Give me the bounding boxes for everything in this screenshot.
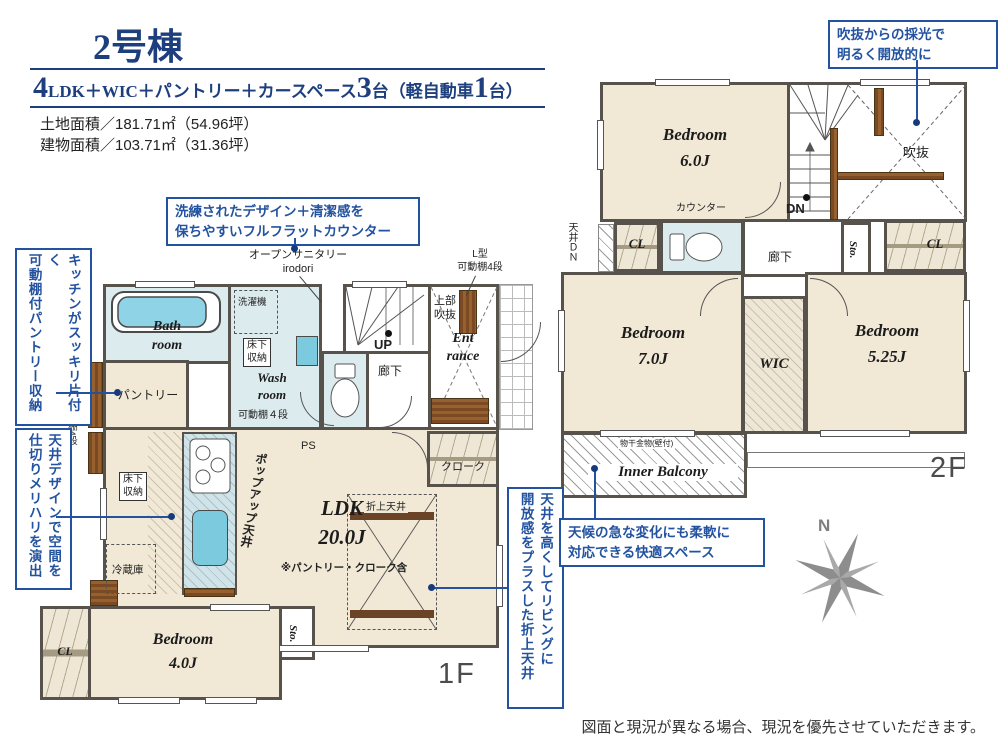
oriage-label: 折上天井: [364, 498, 408, 513]
underfloor-storage-label-1: 床下 収納: [243, 338, 271, 367]
callout-weather-dot: [591, 465, 598, 472]
counter-2f-label: カウンター: [676, 199, 726, 214]
window-2f-3: [597, 120, 604, 170]
divider-top: [30, 68, 545, 70]
window-1f-5: [496, 545, 503, 607]
stair-rail-wood-1: [874, 88, 884, 136]
toilet-icon-2f: [668, 228, 730, 266]
callout-void-light-line: [916, 60, 918, 122]
window-2f-6: [600, 430, 695, 437]
window-1f-1: [135, 281, 195, 288]
spec-num-3: 3: [357, 71, 372, 104]
window-2f-7: [820, 430, 910, 437]
callout-void-light-dot: [913, 119, 920, 126]
window-1f-7: [205, 697, 257, 704]
bath-label: Bath room: [122, 318, 212, 356]
callout-ceiling-design-line: [56, 516, 172, 518]
room-hall-2f: [742, 219, 846, 277]
kitchen-counter-wood-edge: [184, 588, 235, 597]
callout-pantry-dot: [114, 389, 121, 396]
bedroom525-label: Bedroom 5.25J: [822, 318, 952, 369]
hanger-label: 物干金物(壁付): [618, 438, 675, 449]
window-1f-6: [118, 697, 180, 704]
pantry-label: パントリー: [110, 386, 186, 403]
dn-dot: [803, 194, 810, 201]
stair-rail-wood-2: [836, 172, 944, 180]
callout-weather: 天候の急な変化にも柔軟に 対応できる快適スペース: [559, 518, 765, 567]
cloak-label: クローク: [432, 458, 494, 474]
spec-text-2: 台（軽自動車: [372, 82, 474, 101]
closet-1f-label: CL: [50, 644, 80, 659]
ldk-note-label: ※パントリー・クローク含: [264, 560, 424, 575]
callout-ceiling-design: 天井デザインで空間を 仕切りメリハリを演出: [15, 428, 72, 590]
spec-text-1: LDK＋WIC＋パントリー＋カースペース: [48, 82, 357, 101]
floorplan-flyer: 2号棟 4LDK＋WIC＋パントリー＋カースペース3台（軽自動車1台） 土地面積…: [0, 0, 1000, 751]
closet-2f-left-label: CL: [620, 236, 654, 252]
bedroom7-label: Bedroom 7.0J: [588, 320, 718, 371]
upper-void-label: 上部 吹抜: [434, 294, 456, 323]
layout-spec: 4LDK＋WIC＋パントリー＋カースペース3台（軽自動車1台）: [33, 72, 548, 104]
hall-1f-label: 廊下: [378, 362, 402, 379]
fridge-label: 冷蔵庫: [112, 562, 144, 577]
kitchen-shelf-wood: [88, 432, 103, 474]
storage-1f-label: Sto.: [287, 614, 299, 654]
callout-void-light: 吹抜からの採光で 明るく開放的に: [828, 20, 998, 69]
window-1f-3: [100, 488, 107, 540]
bedroom4-label: Bedroom 4.0J: [118, 628, 248, 676]
sink-icon: [192, 510, 228, 566]
floor1-label: 1F: [438, 658, 476, 691]
spec-num-1: 1: [474, 71, 489, 104]
disclaimer-text: 図面と現況が異なる場合、現況を優先させていただきます。: [490, 716, 985, 737]
void-label: 吹抜: [903, 142, 929, 161]
basin-icon: [296, 336, 318, 366]
callout-oriage-dot: [428, 584, 435, 591]
building-number: 2号棟: [93, 27, 183, 67]
washroom-label: Wash room: [232, 370, 312, 404]
callout-oriage-line: [432, 587, 508, 589]
spec-text-3: 台）: [489, 82, 523, 101]
up-label: UP: [374, 337, 392, 352]
window-1f-2: [352, 281, 407, 288]
stair-rail-wood-3: [830, 128, 838, 220]
dn-label: DN: [786, 201, 805, 216]
land-area: 土地面積／181.71㎡（54.96坪）: [40, 114, 258, 135]
window-2f-5: [963, 300, 970, 372]
hall-2f-label: 廊下: [768, 248, 792, 265]
stove-icon: [189, 438, 231, 494]
door-arc-entrance: [501, 322, 541, 362]
oriage-beam-bottom: [350, 610, 434, 618]
window-2f-4: [558, 310, 565, 372]
wic-label: WIC: [748, 356, 800, 373]
spec-num-4: 4: [33, 71, 48, 104]
l-shelf-label: L型 可動棚4段: [440, 248, 520, 274]
page-title: 2号棟: [93, 18, 183, 70]
callout-flat-counter-dot: [291, 245, 298, 252]
compass-icon: [790, 528, 890, 628]
ceiling-dn-hatch-2f: [598, 224, 614, 272]
callout-pantry-line: [56, 392, 118, 394]
open-sanitary-label: オープンサニタリー irodori: [228, 248, 368, 277]
entrance-label: Ent rance: [432, 330, 494, 366]
ceiling-dn-2f-label: 天井ＤＮ: [564, 222, 579, 274]
bedroom6-label: Bedroom 6.0J: [640, 122, 750, 173]
inner-balcony-label: Inner Balcony: [588, 464, 738, 481]
entrance-step-wood: [431, 398, 489, 424]
underfloor-storage-label-2: 床下 収納: [119, 472, 147, 501]
divider-bottom: [30, 106, 545, 108]
callout-weather-line: [594, 470, 596, 518]
callout-ceiling-design-dot: [168, 513, 175, 520]
storage-2f-label: Sto.: [847, 230, 859, 270]
ps-label: PS: [301, 440, 316, 452]
callout-oriage: 天井を高くしてリビングに 開放感をプラスした折上天井: [507, 487, 564, 709]
building-area: 建物面積／103.71㎡（31.36坪）: [40, 135, 258, 156]
closet-2f-right-label: CL: [918, 236, 952, 252]
callout-flat-counter: 洗練されたデザイン＋清潔感を 保ちやすいフルフラットカウンター: [166, 197, 420, 246]
window-2f-1: [655, 79, 730, 86]
window-2f-2: [860, 79, 930, 86]
entrance-shelf-wood: [459, 290, 477, 334]
window-1f-8: [210, 604, 270, 611]
washer-label: 洗濯機: [238, 294, 267, 308]
washroom-shelf-label: 可動棚４段: [238, 406, 288, 421]
up-dot: [385, 330, 392, 337]
callout-pantry-storage: キッチンがスッキリ片付く 可動棚付パントリー収納: [15, 248, 92, 426]
floor2-label: 2F: [930, 452, 968, 485]
